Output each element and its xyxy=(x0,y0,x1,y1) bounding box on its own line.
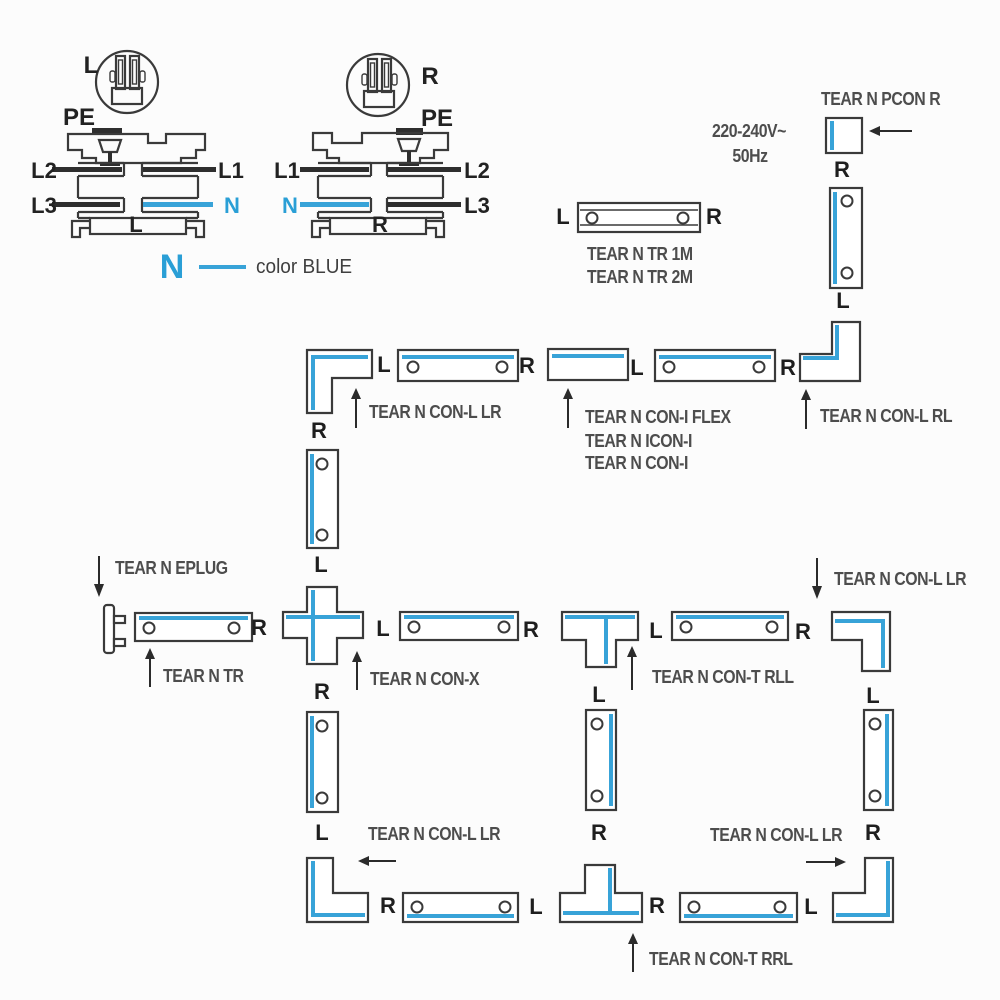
track-3a xyxy=(135,613,252,641)
arrow-down-conl-lr-midright-icon xyxy=(812,558,822,599)
caption-con-l-lr-midright: TEAR N CON-L LR xyxy=(834,570,966,588)
pinout-left-terminal-n: N xyxy=(224,195,240,217)
caption-con-l-lr-bottomright: TEAR N CON-L LR xyxy=(710,826,842,844)
legend-text: color BLUE xyxy=(256,257,352,277)
port-row4-track-a-left: R xyxy=(380,895,396,917)
port-cross-bottom: R xyxy=(314,681,330,703)
arrow-up-coni-icon xyxy=(563,388,573,428)
arrow-up-conl-rl-icon xyxy=(801,389,811,429)
arrow-up-conx-icon xyxy=(352,651,362,690)
port-row3-track-b-left: L xyxy=(376,618,389,640)
track-vertical-left-2 xyxy=(307,712,338,812)
pinout-right-bottom-label: R xyxy=(372,214,388,236)
coni-connector xyxy=(548,349,628,380)
arrow-left-conl-lr-bottomleft-icon xyxy=(358,856,396,866)
port-row2-track-a-left: L xyxy=(377,354,390,376)
caption-con-l-lr-row2: TEAR N CON-L LR xyxy=(369,403,501,421)
track-vertical-right-top xyxy=(830,188,862,288)
caption-tr-1m: TEAR N TR 1M xyxy=(587,245,693,263)
track-vertical-right-2 xyxy=(864,710,893,810)
pinout-left-pe-label: PE xyxy=(63,106,95,130)
pinout-left-bottom-label: L xyxy=(129,214,142,236)
port-row2-track-a-right: R xyxy=(519,355,535,377)
port-row2-track-b-right: R xyxy=(780,357,796,379)
pinout-right-circle-label: R xyxy=(421,65,438,89)
pinout-left-terminal-l1: L1 xyxy=(218,160,244,182)
corner-lr-bottomright xyxy=(833,858,893,922)
port-pcon-bottom: R xyxy=(834,159,850,181)
port-row3-track-b-right: R xyxy=(523,619,539,641)
track-vertical-left-1 xyxy=(307,450,338,548)
corner-lr-bottomleft xyxy=(307,858,368,922)
track-4b xyxy=(680,893,797,922)
pinout-left-body xyxy=(52,51,216,237)
port-row4-track-b-right: L xyxy=(804,896,817,918)
t-rll-connector xyxy=(562,612,638,667)
port-lcol-track1-bottom: L xyxy=(314,554,327,576)
arrow-right-conl-lr-bottomright-icon xyxy=(806,857,846,867)
diagram-canvas xyxy=(0,0,1000,1000)
port-tr-track-right: R xyxy=(251,617,267,639)
port-mid-track-bottom: R xyxy=(591,822,607,844)
caption-eplug: TEAR N EPLUG xyxy=(115,559,228,577)
caption-tr: TEAR N TR xyxy=(163,667,244,685)
caption-con-i-flex: TEAR N CON-I FLEX xyxy=(585,408,731,426)
legend-n-symbol: N xyxy=(160,250,185,284)
caption-icon-i: TEAR N ICON-I xyxy=(585,432,692,450)
corner-rl-connector xyxy=(800,322,860,381)
track-4a xyxy=(403,893,518,922)
caption-con-l-lr-bottomleft: TEAR N CON-L LR xyxy=(368,825,500,843)
arrow-up-cont-rll-icon xyxy=(627,646,637,690)
pinout-right-terminal-l1: L1 xyxy=(274,160,300,182)
corner-lr-row2 xyxy=(307,350,372,413)
port-row3-track-c-left: L xyxy=(649,620,662,642)
pinout-right-terminal-n: N xyxy=(282,195,298,217)
arrow-up-tr-icon xyxy=(145,648,155,687)
track-vertical-mid xyxy=(586,710,616,810)
pcon-connector xyxy=(826,118,862,153)
port-top-track-left: L xyxy=(556,206,569,228)
plug-r-icon xyxy=(362,59,397,107)
arrow-down-eplug-icon xyxy=(94,556,104,597)
caption-con-t-rll: TEAR N CON-T RLL xyxy=(652,668,794,686)
pinout-left-circle-label: L xyxy=(84,54,99,78)
track-top xyxy=(578,203,700,232)
track-3c xyxy=(672,612,788,640)
port-t-rll-stem-bottom: L xyxy=(592,684,605,706)
pinout-right-pe-label: PE xyxy=(421,107,453,131)
port-row3-track-c-right: R xyxy=(795,621,811,643)
caption-pcon: TEAR N PCON R xyxy=(821,90,940,108)
arrow-up-conl-lr-row2-icon xyxy=(351,388,361,428)
port-top-track-right: R xyxy=(706,206,722,228)
port-rcol-track2-bottom: R xyxy=(865,822,881,844)
port-corner-a-bottom: R xyxy=(311,420,327,442)
arrow-up-cont-rrl-icon xyxy=(628,933,638,972)
track-3b xyxy=(400,612,518,640)
corner-lr-midright xyxy=(832,612,890,671)
pinout-left-terminal-l2: L2 xyxy=(31,160,57,182)
cross-connector xyxy=(283,587,363,664)
caption-con-i: TEAR N CON-I xyxy=(585,454,688,472)
pinout-right-terminal-l3: L3 xyxy=(464,195,490,217)
caption-tr-2m: TEAR N TR 2M xyxy=(587,268,693,286)
power-voltage: 220-240V~ xyxy=(712,122,786,140)
caption-con-x: TEAR N CON-X xyxy=(370,670,479,688)
track-row2-a xyxy=(398,350,518,381)
port-lcol-track2-bottom: L xyxy=(315,822,328,844)
arrow-left-pcon-icon xyxy=(869,126,912,136)
port-row2-track-b-left: L xyxy=(630,357,643,379)
power-frequency: 50Hz xyxy=(732,147,767,165)
pinout-left-terminal-l3: L3 xyxy=(31,195,57,217)
port-row4-track-a-right: L xyxy=(529,896,542,918)
caption-con-l-rl: TEAR N CON-L RL xyxy=(820,407,952,425)
port-row4-track-b-left: R xyxy=(649,895,665,917)
track-row2-b xyxy=(655,350,775,381)
plug-l-icon xyxy=(110,56,145,104)
pinout-right-terminal-l2: L2 xyxy=(464,160,490,182)
eplug-connector xyxy=(104,605,125,653)
caption-con-t-rrl: TEAR N CON-T RRL xyxy=(649,950,792,968)
diagram-page: L PE L2 L1 L3 N L R PE L1 L2 N L3 R N co… xyxy=(0,0,1000,1000)
port-rcol-track1-bottom: L xyxy=(836,290,849,312)
t-rrl-connector xyxy=(560,865,642,922)
port-rcol-track2-top: L xyxy=(866,685,879,707)
